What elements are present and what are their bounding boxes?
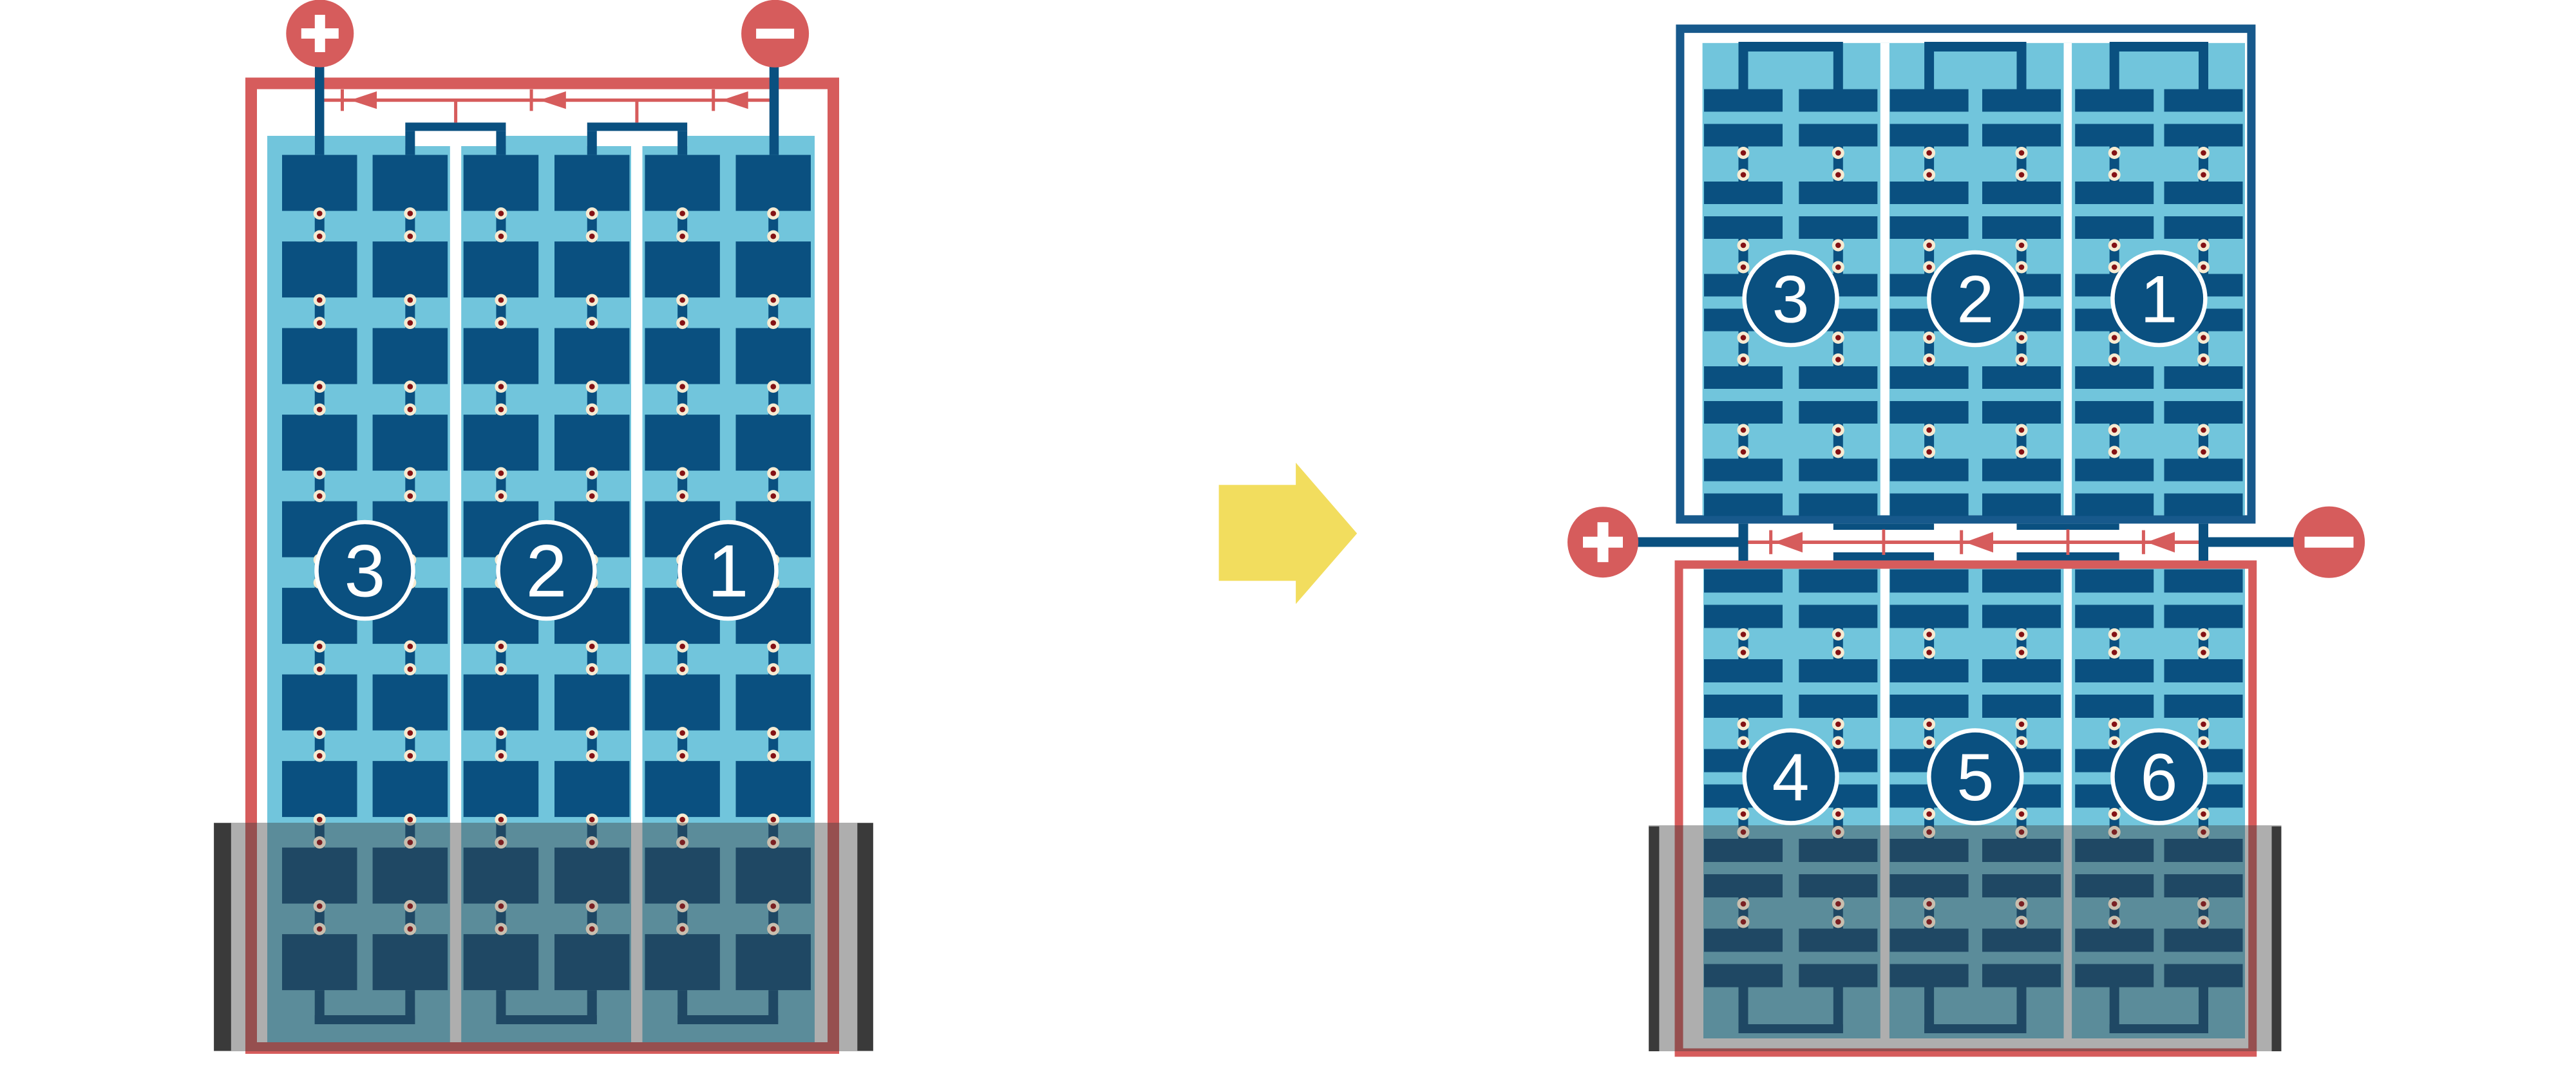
svg-text:1: 1 (708, 530, 749, 612)
svg-text:4: 4 (1772, 740, 1810, 815)
svg-text:3: 3 (1772, 263, 1810, 337)
svg-text:2: 2 (526, 530, 567, 612)
svg-text:1: 1 (2140, 263, 2177, 337)
svg-text:5: 5 (1956, 740, 1994, 815)
svg-text:6: 6 (2140, 740, 2177, 815)
svg-text:3: 3 (345, 530, 386, 612)
svg-text:2: 2 (1956, 263, 1994, 337)
